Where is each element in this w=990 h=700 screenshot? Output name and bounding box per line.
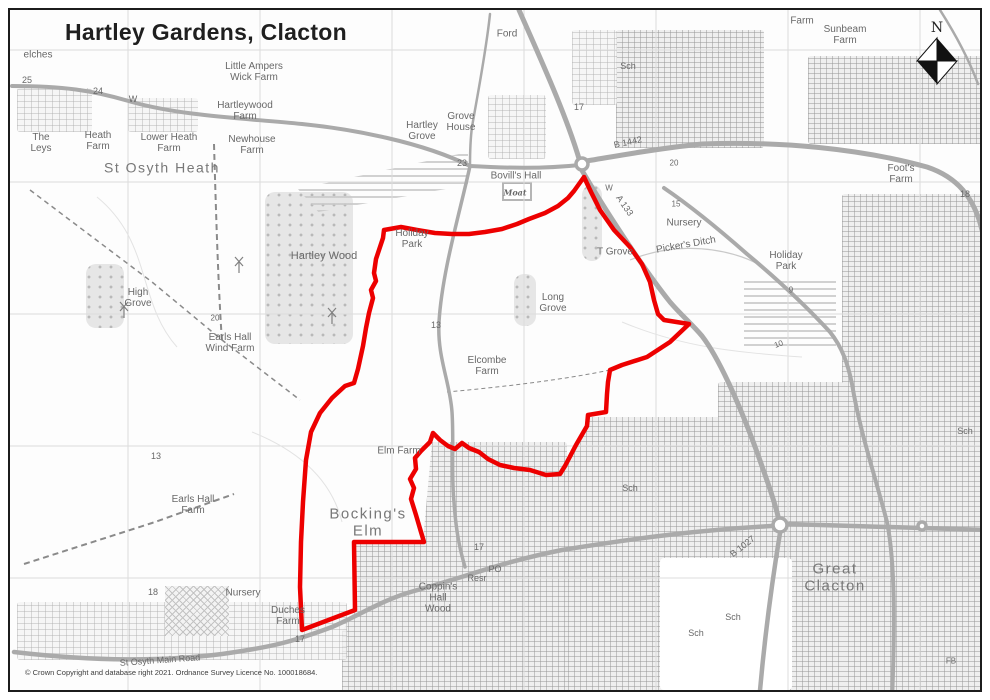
compass-star-icon	[914, 36, 960, 86]
north-label: N	[914, 20, 960, 36]
map-label: Elm Farm	[377, 446, 420, 457]
map-label: Ford	[497, 29, 518, 40]
map-label: B 1442	[613, 135, 643, 151]
map-label: The Leys	[30, 132, 51, 154]
map-label: Sch	[622, 484, 638, 494]
map-label: Great Clacton	[804, 562, 865, 595]
map-label: Holiday Park	[395, 228, 428, 250]
map-label: Lower Heath Farm	[141, 132, 198, 154]
map-label: 13	[431, 321, 441, 331]
map-label: 10	[773, 339, 784, 350]
map-label: 17	[474, 543, 484, 553]
map-label: 25	[22, 76, 32, 86]
map-label: Sch	[957, 427, 973, 437]
map-label: Earls Hall Farm	[172, 494, 215, 516]
map-label: FB	[946, 658, 956, 667]
north-compass: N	[914, 20, 960, 92]
map-label: Newhouse Farm	[228, 134, 275, 156]
map-label: 18	[148, 588, 158, 598]
map-content: elches2524WLittle Ampers Wick FarmHartle…	[8, 8, 982, 692]
map-label: Long Grove	[539, 292, 566, 314]
map-label: Hartleywood Farm	[217, 100, 273, 122]
map-label: Heath Farm	[85, 130, 112, 152]
map-label: Moat	[503, 189, 526, 198]
map-label: Sunbeam Farm	[824, 24, 867, 46]
map-label: Little Ampers Wick Farm	[225, 61, 283, 83]
map-label: 23	[457, 159, 467, 169]
map-label: Nursery	[666, 218, 701, 229]
map-label: W	[605, 185, 613, 194]
map-label: Holiday Park	[769, 250, 802, 272]
map-label: 17	[295, 635, 305, 645]
map-frame: elches2524WLittle Ampers Wick FarmHartle…	[8, 8, 982, 692]
map-label: 9	[789, 287, 793, 296]
map-label: T Grove	[597, 247, 633, 258]
map-label: Nursery	[225, 588, 260, 599]
map-label: Sch	[620, 62, 636, 72]
map-label: B 1027	[729, 534, 758, 559]
map-label: 18	[960, 190, 970, 200]
map-label: St Osyth Heath	[104, 160, 220, 175]
map-labels: elches2524WLittle Ampers Wick FarmHartle…	[8, 8, 982, 692]
map-label: High Grove	[124, 287, 151, 309]
map-label: elches	[24, 50, 53, 61]
map-label: 13	[151, 452, 161, 462]
map-label: Farm	[790, 16, 813, 27]
map-label: 17	[574, 103, 584, 113]
map-label: St Osyth Main Road	[119, 653, 200, 668]
map-label: Coppin's Hall Wood	[419, 582, 458, 615]
map-label: Picker's Ditch	[655, 234, 716, 255]
map-label: Bocking's Elm	[329, 507, 406, 540]
map-label: Foot's Farm	[888, 163, 915, 185]
page-title: Hartley Gardens, Clacton	[65, 19, 347, 46]
map-label: Sch	[725, 613, 741, 623]
map-label: A 133	[613, 194, 634, 219]
map-label: Resr	[467, 574, 486, 584]
copyright-notice: © Crown Copyright and database right 202…	[25, 668, 317, 677]
map-label: Grove House	[447, 111, 476, 133]
map-label: Hartley Grove	[406, 120, 438, 142]
map-label: 24	[93, 87, 103, 97]
map-label: Hartley Wood	[291, 250, 357, 262]
map-label: Earls Hall Wind Farm	[206, 332, 255, 354]
map-page: elches2524WLittle Ampers Wick FarmHartle…	[0, 0, 990, 700]
map-label: 15	[672, 201, 681, 210]
map-label: Duches Farm	[271, 605, 305, 627]
map-label: PO	[488, 565, 501, 575]
map-label: 20	[670, 160, 679, 169]
map-label: Elcombe Farm	[468, 355, 507, 377]
map-label: 20	[211, 315, 220, 324]
map-label: W	[129, 95, 138, 105]
map-label: Sch	[688, 629, 704, 639]
map-label: Bovill's Hall	[491, 171, 542, 182]
